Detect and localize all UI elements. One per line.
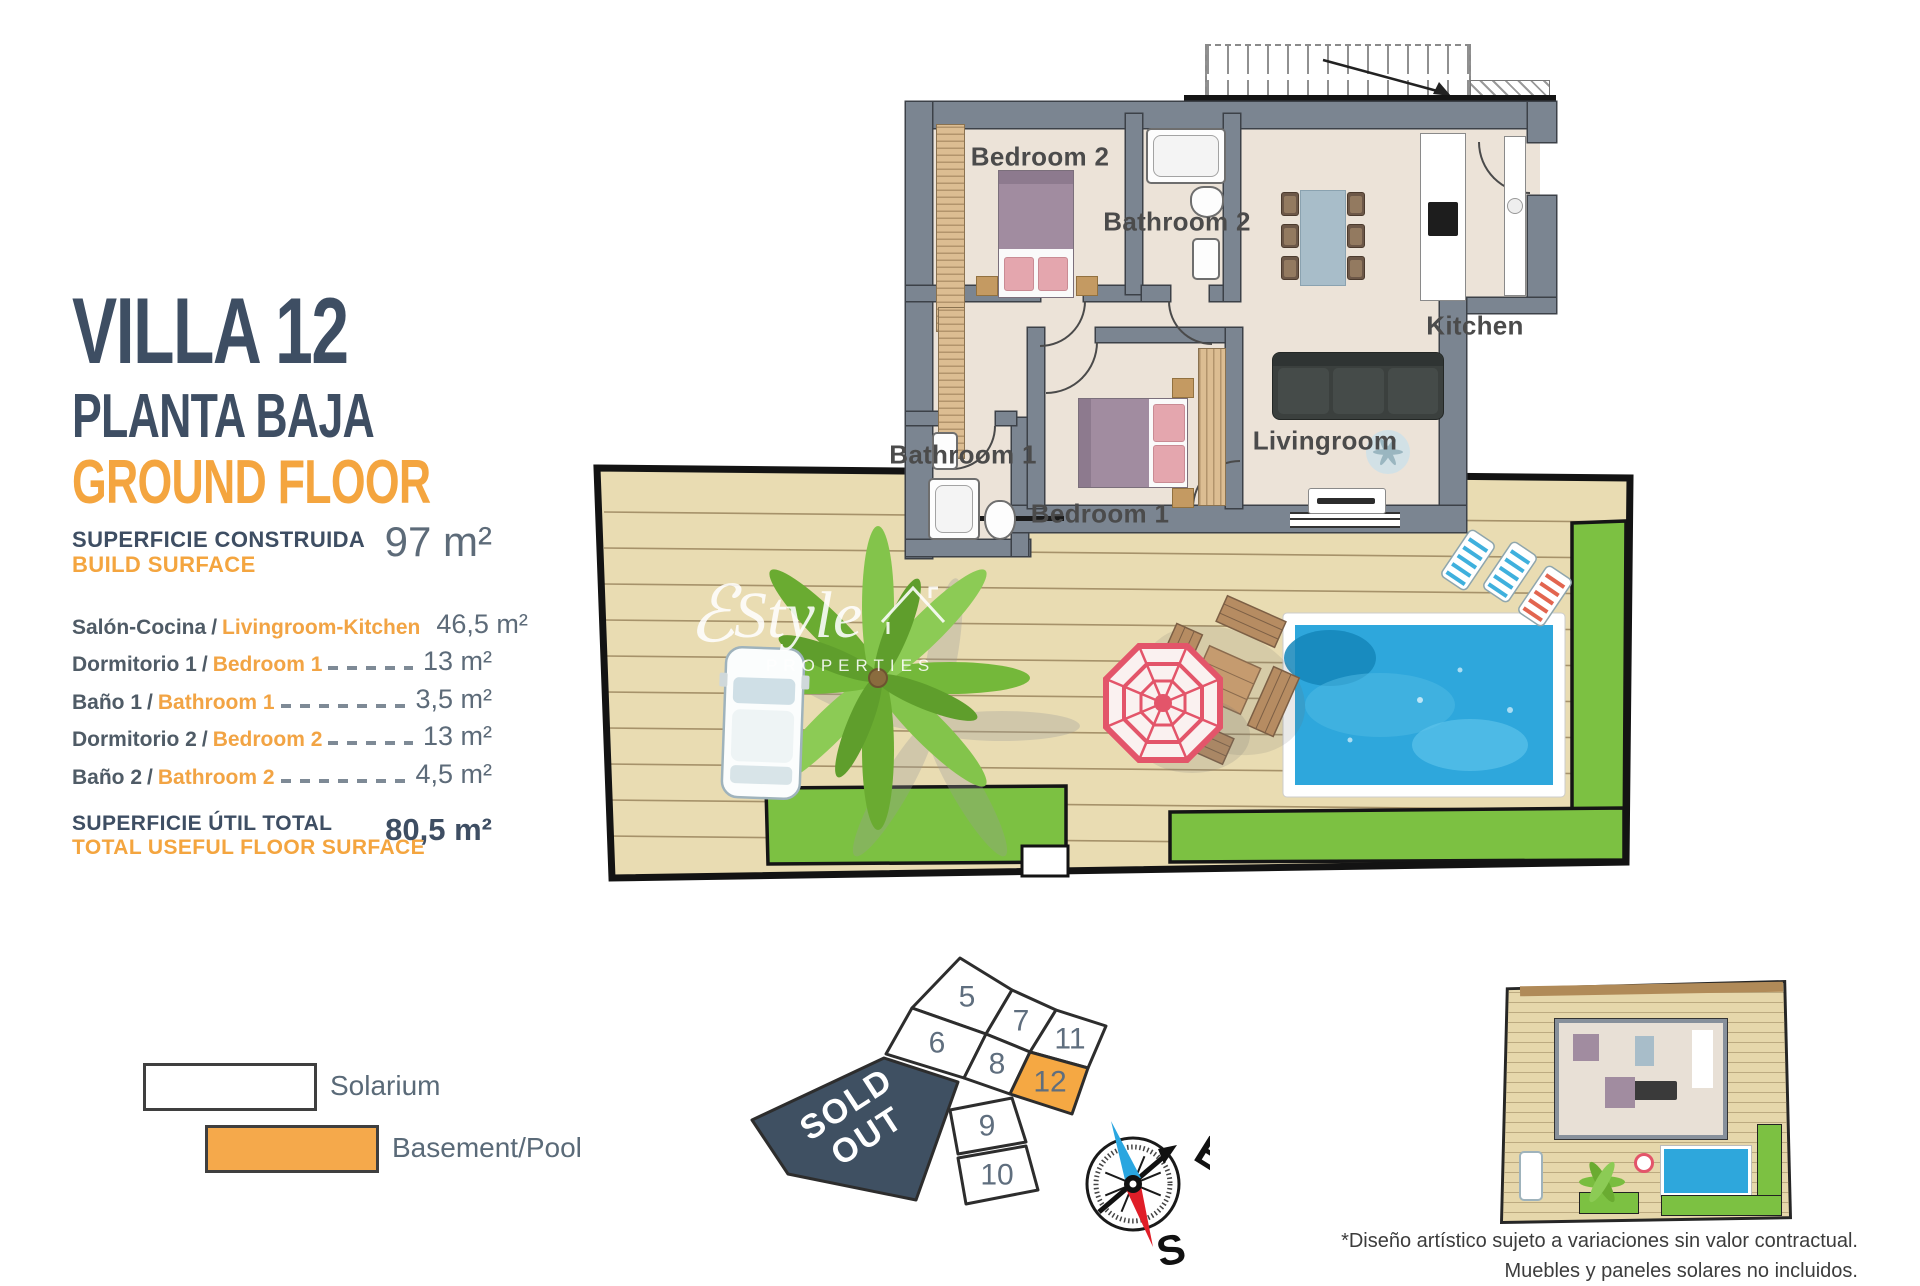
dining-chair (1347, 224, 1365, 248)
nightstand (976, 276, 998, 296)
bed-pillow (1004, 257, 1034, 291)
page-title: VILLA 12 (72, 284, 348, 378)
kitchen-counter (1504, 136, 1526, 296)
mini-dining-table (1635, 1036, 1655, 1065)
compass-south: S (1152, 1224, 1189, 1270)
floor-plan-sheet: VILLA 12 PLANTA BAJA GROUND FLOOR SUPERF… (0, 0, 1920, 1280)
nightstand (1172, 488, 1194, 508)
wall (1528, 196, 1556, 308)
plot-number: 9 (979, 1110, 996, 1143)
double-bed (1078, 398, 1188, 488)
sofa-cushion (1388, 368, 1438, 414)
garden-gate (1022, 846, 1068, 876)
mini-palm (1573, 1158, 1633, 1208)
room-row: Baño 2/Bathroom 2 4,5 m² (72, 752, 492, 790)
nightstand (1172, 378, 1194, 398)
mini-car (1519, 1151, 1543, 1201)
swimming-pool (1283, 613, 1565, 797)
cooktop (1428, 202, 1458, 236)
double-bed (998, 170, 1074, 298)
room-row: Salón-Cocina/Livingroom-Kitchen 46,5 m² (72, 602, 492, 640)
wall (1028, 328, 1044, 508)
legend-swatch-basement-pool (205, 1125, 379, 1173)
sofa (1272, 352, 1444, 420)
legend-label-basement-pool: Basement/Pool (392, 1132, 582, 1164)
mini-house (1555, 1019, 1727, 1139)
plot-number: 6 (929, 1027, 946, 1060)
shower-tray (935, 485, 973, 533)
total-value: 80,5 m² (385, 812, 492, 848)
dotted-leader (281, 779, 406, 783)
room-row: Baño 1/Bathroom 1 3,5 m² (72, 677, 492, 715)
dotted-leader (328, 666, 413, 670)
bathtub (1146, 128, 1226, 184)
wall (1528, 102, 1556, 142)
lawn-bottom-right (1170, 808, 1624, 862)
mini-bed (1573, 1034, 1599, 1061)
room-label-bedroom1: Bedroom 1 (1031, 499, 1170, 530)
room-label-kitchen: Kitchen (1426, 311, 1523, 342)
disclaimer: *Diseño artístico sujeto a variaciones s… (1341, 1226, 1858, 1286)
wall (996, 412, 1016, 425)
sofa-cushion (1333, 368, 1384, 414)
room-row: Dormitorio 2/Bedroom 2 13 m² (72, 715, 492, 753)
nightstand (1076, 276, 1098, 296)
kitchen-sink (1507, 198, 1523, 214)
watermark-mark: ℰ (688, 570, 735, 660)
sofa-back (1273, 353, 1443, 366)
mini-kitchen (1692, 1030, 1713, 1088)
bed-pillow (1038, 257, 1068, 291)
dining-chair (1347, 192, 1365, 216)
room-label-livingroom: Livingroom (1253, 426, 1398, 457)
plot-map: 5 7 11 6 8 12 9 10 SOLD OUT (730, 950, 1210, 1270)
bed-headboard (1079, 399, 1091, 487)
plot-number: 5 (959, 981, 976, 1014)
wall (1126, 114, 1142, 294)
dotted-leader (328, 741, 413, 745)
total-label-es: SUPERFICIE ÚTIL TOTAL (72, 812, 332, 836)
subtitle-en: GROUND FLOOR (72, 452, 430, 514)
disclaimer-line1: *Diseño artístico sujeto a variaciones s… (1341, 1226, 1858, 1256)
plot-number: 7 (1013, 1005, 1030, 1038)
legend-swatch-solarium (143, 1063, 317, 1111)
total-label-en: TOTAL USEFUL FLOOR SURFACE (72, 836, 425, 860)
room-label-bathroom1: Bathroom 1 (889, 440, 1036, 471)
sink (1192, 238, 1220, 280)
room-list: Salón-Cocina/Livingroom-Kitchen 46,5 m² … (72, 602, 492, 790)
watermark-name: Style (734, 578, 862, 654)
room-label-bathroom2: Bathroom 2 (1103, 207, 1250, 238)
watermark-sub: PROPERTIES (766, 656, 935, 676)
mini-lawn-bottom (1661, 1195, 1783, 1217)
compass-icon: E S (1087, 1121, 1210, 1270)
shower (928, 478, 980, 540)
dining-chair (1281, 224, 1299, 248)
room-label-bedroom2: Bedroom 2 (971, 142, 1110, 173)
sliding-door (1290, 512, 1400, 528)
dotted-leader (281, 704, 406, 708)
wardrobe (936, 124, 965, 332)
bed-pillow (1153, 404, 1185, 442)
mini-bed (1605, 1077, 1634, 1108)
bathtub-basin (1153, 135, 1219, 177)
bed-headboard (999, 171, 1073, 184)
bed-pillow (1153, 445, 1185, 483)
dining-chair (1281, 256, 1299, 280)
dining-chair (1281, 192, 1299, 216)
mini-pool (1661, 1146, 1752, 1196)
build-surface-value: 97 m² (385, 518, 492, 566)
toilet (984, 500, 1016, 540)
wardrobe (1198, 348, 1226, 506)
wall (1096, 328, 1242, 342)
plot-number: 10 (980, 1159, 1013, 1192)
mini-overview (1500, 980, 1792, 1224)
subtitle-es: PLANTA BAJA (72, 386, 374, 448)
build-surface-label-en: BUILD SURFACE (72, 552, 256, 578)
tv-screen (1317, 498, 1375, 504)
tv-unit (1308, 488, 1386, 514)
plot-number: 11 (1054, 1023, 1085, 1056)
dining-table (1300, 190, 1346, 286)
watermark-house-icon (878, 576, 948, 636)
disclaimer-line2: Muebles y paneles solares no incluidos. (1341, 1256, 1858, 1286)
plot-number-highlighted: 12 (1033, 1066, 1066, 1099)
legend-label-solarium: Solarium (330, 1070, 440, 1102)
sofa-cushion (1278, 368, 1329, 414)
build-surface-label-es: SUPERFICIE CONSTRUIDA (72, 527, 365, 553)
plot-number: 8 (989, 1048, 1006, 1081)
dining-chair (1347, 256, 1365, 280)
wall (1142, 286, 1170, 301)
room-row: Dormitorio 1/Bedroom 1 13 m² (72, 640, 492, 678)
roof-edge-line (1184, 95, 1556, 102)
floorplan: Bedroom 2 Bathroom 2 Kitchen (900, 40, 1560, 585)
compass-east: E (1187, 1127, 1210, 1182)
